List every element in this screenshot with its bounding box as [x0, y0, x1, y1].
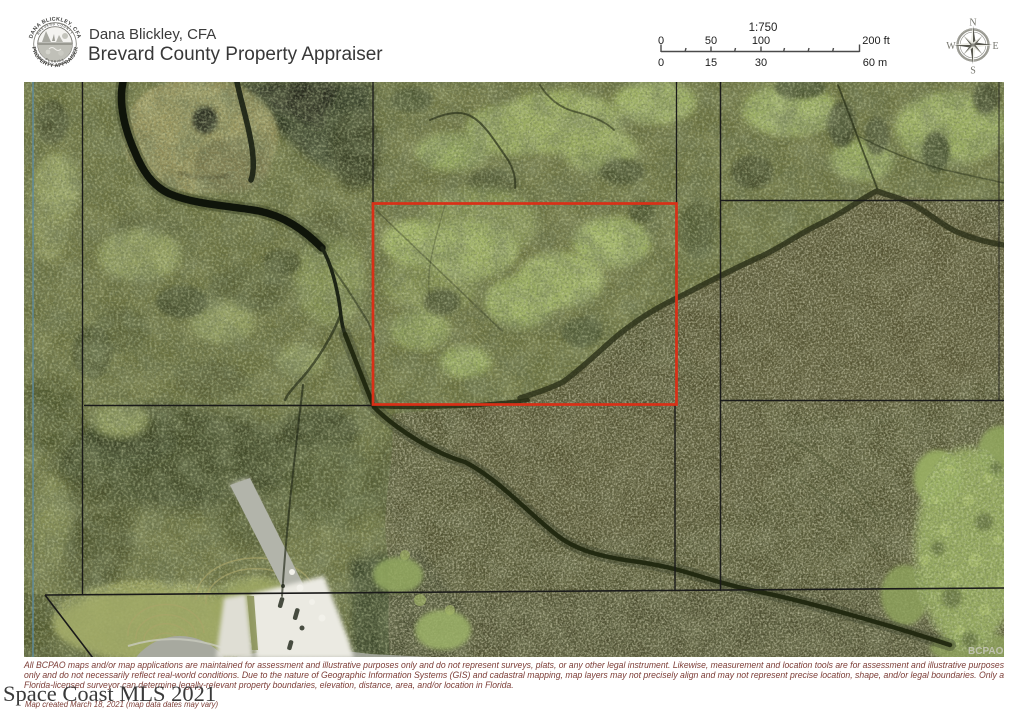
svg-text:W: W [946, 41, 956, 52]
svg-text:15: 15 [705, 57, 717, 69]
svg-text:BCPAO: BCPAO [968, 646, 1004, 657]
svg-text:200 ft: 200 ft [862, 35, 890, 47]
svg-text:0: 0 [658, 57, 664, 69]
svg-text:0: 0 [658, 35, 664, 47]
svg-text:30: 30 [755, 57, 767, 69]
svg-text:N: N [969, 18, 976, 29]
svg-text:1:750: 1:750 [749, 22, 778, 34]
svg-text:100: 100 [752, 35, 770, 47]
svg-text:E: E [992, 41, 998, 52]
svg-text:S: S [970, 66, 976, 77]
svg-text:60 m: 60 m [863, 57, 887, 69]
svg-text:50: 50 [705, 35, 717, 47]
